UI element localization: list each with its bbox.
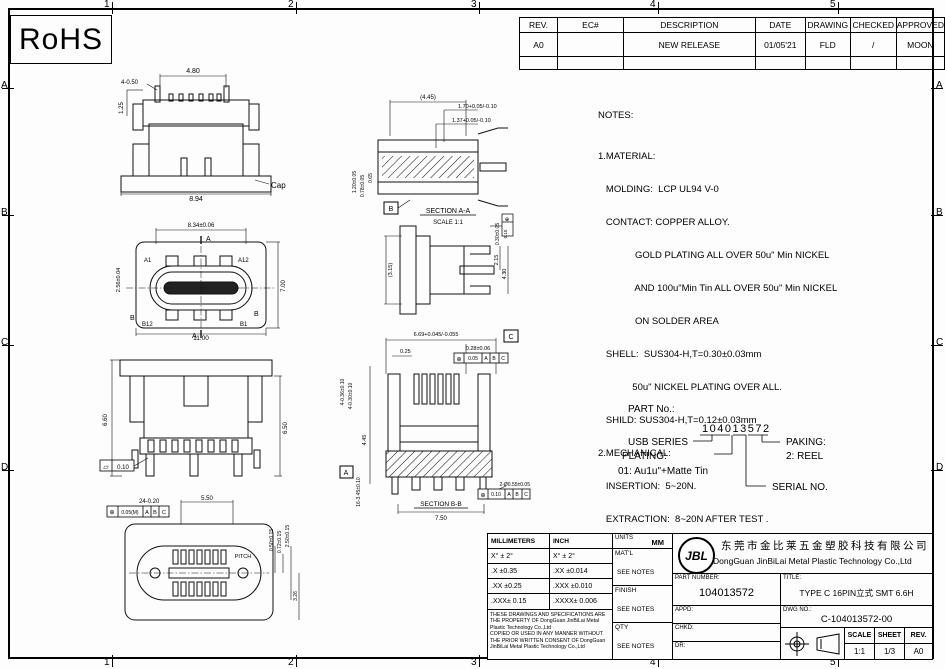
drawing-sheet: 1 2 3 4 5 1 2 3 4 5 A B C D A B C D RoHS…	[0, 0, 945, 669]
rear-dim-lines	[110, 360, 282, 476]
view-front: 4.80 4-0.50 1.25 8.94 Cap	[103, 60, 293, 202]
datum-label: C	[508, 334, 513, 341]
dim-label: 16-3.45±0.10	[356, 477, 362, 507]
bottom-geometry	[125, 524, 273, 620]
position-icon: ⊕	[505, 217, 510, 223]
rear-gdt-frame: ▱ 0.10	[100, 460, 134, 471]
revision-row-empty	[520, 57, 945, 70]
rev-header-cell: REV.	[904, 627, 933, 644]
border-col-label: 2	[288, 0, 294, 10]
dim-label: 4.30	[502, 269, 508, 280]
projection-symbol-cell	[780, 627, 845, 660]
dim-label: 1.70+0.05/-0.10	[458, 104, 497, 110]
dim-label: 4-0.30±0.10	[348, 382, 354, 409]
dim-label: 6.69+0.045/-0.055	[414, 332, 459, 338]
tolerance-cell: .XX ±0.014	[549, 563, 613, 579]
border-col-label: 4	[650, 0, 656, 10]
part-number-value: 104013572	[699, 587, 754, 599]
section-arrow-a: A	[206, 236, 211, 243]
dim-label: 0.28±0.06	[466, 346, 490, 352]
dim-label: 4.80	[186, 68, 200, 75]
section-arrow-b: B	[130, 315, 135, 322]
tolerance-cell: .XXXX± 0.006	[549, 593, 613, 610]
qty-value: SEE NOTES	[617, 643, 654, 650]
dim-label: 0.25	[400, 349, 411, 355]
front-geometry	[121, 86, 271, 192]
chkd-label: CHKD:	[675, 625, 694, 631]
logo-text: JBL	[685, 549, 708, 563]
units-value: MM	[652, 538, 665, 547]
note-line: ON SOLDER AREA	[598, 316, 933, 327]
pin-b12-label: B12	[142, 322, 153, 328]
approved-col-header: APPROVED	[896, 18, 944, 33]
drawing-col-header: DRAWING	[805, 18, 850, 33]
scale-label: SCALE	[848, 632, 872, 639]
border-col-label: 3	[471, 0, 477, 10]
note-line: AND 100u"Min Tin ALL OVER 50u" Min NICKE…	[598, 283, 933, 294]
dim-label: 4-0.50	[121, 80, 139, 86]
revision-table: REV. EC# DESCRIPTION DATE DRAWING CHECKE…	[519, 17, 945, 70]
view-bottom-pads: 24-0.20 ⊕ 0.05(M) A B C	[103, 494, 303, 634]
rev-value: A0	[914, 647, 924, 656]
company-cell: JBL 东莞市金比莱五金塑胶科技有限公司 DongGuan JinBiLai M…	[672, 533, 933, 574]
dim-label: 2.56±0.04	[116, 268, 122, 292]
pitch-label: PITCH	[235, 554, 252, 560]
border-row-label: D	[1, 462, 8, 473]
date-empty	[755, 57, 805, 70]
dim-label: 6.50	[283, 422, 289, 434]
section-arrow-b: B	[254, 311, 259, 318]
view-section-aa: (4.45) 1.70+0.05/-0.10 1.37+0.05/-0.10 1…	[348, 82, 513, 227]
dim-label: 0.50±0.15	[269, 529, 275, 551]
note-line: 50u" NICKEL PLATING OVER ALL.	[598, 382, 933, 393]
qty-cell: QTY SEE NOTES	[612, 622, 673, 660]
dim-label: 5.50	[201, 496, 213, 502]
dim-label: 2.50±0.15	[285, 525, 291, 547]
border-row-label: A	[936, 80, 943, 91]
pin-b1-label: B1	[240, 322, 248, 328]
dim-label: 2.15	[494, 255, 500, 266]
border-col-label: 1	[104, 0, 110, 10]
border-col-label: 2	[288, 657, 294, 668]
gdt-datum: C	[162, 510, 166, 516]
title-cell: TITLE: TYPE C 16PIN立式 SMT 6.6H	[780, 573, 933, 606]
tolerance-cell: .XX ±0.25	[487, 578, 550, 594]
description-empty	[623, 57, 755, 70]
material-cell: MAT'L SEE NOTES	[612, 548, 673, 586]
rear-geometry	[120, 360, 272, 476]
material-label: MAT'L	[615, 550, 633, 557]
revision-row: A0 NEW RELEASE 01/05'21 FLD / MOON	[520, 33, 945, 57]
scale-value-cell: 1:1	[844, 643, 875, 660]
border-tick	[296, 2, 297, 14]
legal-disclaimer: THESE DRAWINGS AND SPECIFICATIONS ARE TH…	[487, 609, 613, 660]
position-icon: ⊕	[109, 510, 114, 516]
gdt-datum: C	[524, 492, 528, 498]
description-value: NEW RELEASE	[623, 33, 755, 57]
dim-label: (3.15)	[388, 263, 394, 278]
finish-label: FINISH	[615, 587, 636, 594]
position-icon: ⊕	[456, 357, 461, 363]
view-rear: 6.60 6.50 ▱ 0.10	[96, 340, 296, 488]
dim-label: 7.00	[281, 280, 287, 292]
ec-empty	[557, 57, 623, 70]
part-no-number: 104013572	[702, 423, 771, 435]
rohs-label: RoHS	[19, 23, 103, 57]
bb-datum-c: C	[504, 330, 518, 342]
note-line: MOLDING: LCP UL94 V-0	[598, 184, 933, 195]
border-tick	[296, 655, 297, 667]
qty-label: QTY	[615, 624, 628, 631]
dim-label: 4-0.36±0.10	[340, 378, 346, 405]
dim-label: 7.50	[435, 516, 447, 522]
tolerance-mm-header: MILLIMETERS	[487, 533, 550, 549]
gdt-datum: A	[145, 510, 149, 516]
tolerance-cell: .X ±0.35	[487, 563, 550, 579]
view-side: (3.15) 0.30±0.05 ⊕ 0.15 2.15 4.30	[356, 212, 514, 330]
dim-label: 1.25	[119, 102, 125, 114]
bottom-gdt-frame: ⊕ 0.05(M) A B C	[107, 506, 169, 517]
dim-label: 0.65	[368, 173, 374, 183]
material-value: SEE NOTES	[617, 569, 654, 576]
section-arrow-a: A	[192, 333, 197, 340]
border-tick	[112, 655, 113, 667]
plating-value: 01: Au1u"+Matte Tin	[618, 466, 708, 477]
border-col-label: 3	[471, 657, 477, 668]
company-name-en: DongGuan JinBiLai Metal Plastic Technolo…	[713, 556, 912, 566]
tolerance-cell: .XXX± 0.15	[487, 593, 550, 610]
sheet-value: 1/3	[884, 647, 895, 656]
front-dim-lines	[121, 74, 271, 196]
checked-value: /	[850, 33, 896, 57]
notes-title: NOTES:	[598, 110, 933, 121]
dwg-no-cell: DWG NO.: C-104013572-00	[780, 605, 933, 628]
approved-value: MOON	[896, 33, 944, 57]
drawing-value: FLD	[805, 33, 850, 57]
units-label: UNITS	[615, 535, 633, 541]
tolerance-cell: .XXX ±0.010	[549, 578, 613, 594]
gdt-datum: B	[153, 510, 157, 516]
border-tick	[479, 2, 480, 14]
rev-empty	[520, 57, 558, 70]
dim-label: 1.20±0.05	[352, 171, 358, 193]
view-section-bb: 6.69+0.045/-0.055 C 0.25 0.28±0.06 ⊕ 0.0…	[336, 326, 532, 526]
rohs-stamp: RoHS	[10, 15, 112, 64]
note-line: GOLD PLATING ALL OVER 50u" Min NICKEL	[598, 250, 933, 261]
rev-value-cell: A0	[904, 643, 933, 660]
aa-geometry	[378, 128, 508, 206]
gdt-value: 0.10	[491, 492, 501, 498]
border-col-label: 5	[830, 0, 836, 10]
border-row-label: B	[1, 207, 8, 218]
dim-label: 0.78±0.05	[360, 175, 366, 197]
section-bb-title: SECTION B-B	[420, 501, 462, 508]
ec-col-header: EC#	[557, 18, 623, 33]
scale-value: 1:1	[854, 647, 865, 656]
date-col-header: DATE	[755, 18, 805, 33]
units-cell: UNITS MM	[612, 533, 673, 549]
bb-datum-a: A	[340, 466, 353, 478]
note-line: CONTACT: COPPER ALLOY.	[598, 217, 933, 228]
part-no-label: PART No.:	[628, 404, 675, 415]
border-row-label: C	[936, 337, 943, 348]
third-angle-projection-icon	[781, 628, 844, 659]
finish-cell: FINISH SEE NOTES	[612, 585, 673, 623]
dr-label: DR:	[675, 643, 685, 649]
dim-label: 4.45	[362, 435, 368, 446]
dim-label: 8.34±0.06	[188, 223, 215, 229]
bb-gdt-frame-2: ⊕ 0.10 A B C	[478, 489, 530, 499]
appd-label: APPD:	[675, 607, 693, 613]
date-value: 01/05'21	[755, 33, 805, 57]
paking-value: 2: REEL	[786, 451, 824, 462]
drawing-empty	[805, 57, 850, 70]
tolerance-inch-header: INCH	[549, 533, 613, 549]
border-tick	[658, 2, 659, 14]
rev-col-header: REV.	[520, 18, 558, 33]
gdt-value: 0.10	[117, 465, 129, 471]
company-logo: JBL	[678, 537, 715, 574]
bb-gdt-frame-1: ⊕ 0.05 A B C	[454, 353, 508, 363]
pin-a12-label: A12	[238, 258, 249, 264]
dim-label: (4.45)	[420, 95, 436, 101]
side-dim-lines	[384, 226, 508, 304]
sheet-header-cell: SHEET	[874, 627, 905, 644]
gdt-value: 0.05(M)	[121, 510, 139, 516]
drawing-title: TYPE C 16PIN立式 SMT 6.6H	[799, 587, 913, 599]
gdt-value: 0.15	[503, 229, 508, 238]
checked-col-header: CHECKED	[850, 18, 896, 33]
tolerance-cell: X° ± 2°	[487, 548, 550, 564]
border-tick	[112, 2, 113, 14]
dr-cell: DR:	[672, 641, 781, 660]
revision-header-row: REV. EC# DESCRIPTION DATE DRAWING CHECKE…	[520, 18, 945, 33]
tolerance-cell: X° ± 2°	[549, 548, 613, 564]
description-col-header: DESCRIPTION	[623, 18, 755, 33]
dim-label: 6.60	[103, 414, 109, 426]
border-col-label: 1	[104, 657, 110, 668]
part-no-leader-lines	[693, 435, 780, 486]
dim-label: 2-Ø0.55±0.05	[499, 482, 530, 488]
chkd-cell: CHKD:	[672, 623, 781, 642]
position-icon: ⊕	[480, 493, 485, 499]
ec-value	[557, 33, 623, 57]
dim-label: 0.30±0.05	[495, 223, 501, 245]
sheet-value-cell: 1/3	[874, 643, 905, 660]
serial-no-label: SERIAL NO.	[772, 482, 828, 493]
side-geometry	[400, 226, 494, 314]
border-row-label: A	[1, 80, 8, 91]
sheet-label: SHEET	[878, 632, 901, 639]
cap-label: Cap	[271, 181, 286, 190]
finish-value: SEE NOTES	[617, 606, 654, 613]
bb-geometry	[386, 374, 492, 494]
dim-label: 24-0.20	[139, 499, 160, 505]
approved-empty	[896, 57, 944, 70]
note-line: SHELL: SUS304-H,T=0.30±0.03mm	[598, 349, 933, 360]
rev-label: REV.	[911, 632, 927, 639]
dim-label: 1.37+0.05/-0.10	[452, 118, 491, 124]
dim-label: 0.72±0.15	[277, 531, 283, 553]
plating-label: PLATING:	[622, 451, 667, 462]
border-tick	[838, 2, 839, 14]
part-number-breakdown: PART No.: 104013572 USB SERIES PLATING: …	[590, 398, 940, 513]
scale-header-cell: SCALE	[844, 627, 875, 644]
company-name-cn: 东莞市金比莱五金塑胶科技有限公司	[721, 538, 929, 553]
note-line: 1.MATERIAL:	[598, 151, 933, 162]
gdt-datum: C	[501, 356, 505, 362]
datum-label: A	[344, 470, 349, 477]
border-row-label: C	[1, 337, 8, 348]
flatness-icon: ▱	[103, 464, 109, 471]
border-row-label: B	[936, 207, 943, 218]
side-gdt-frame: ⊕ 0.15	[502, 214, 513, 238]
gdt-value: 0.05	[468, 356, 478, 362]
paking-label: PAKING:	[786, 437, 826, 448]
dwg-no-value: C-104013572-00	[821, 614, 892, 625]
pin-a1-label: A1	[144, 258, 152, 264]
appd-cell: APPD:	[672, 605, 781, 624]
usb-series-label: USB SERIES	[628, 437, 688, 448]
dim-label: 3.26	[293, 591, 299, 601]
checked-empty	[850, 57, 896, 70]
note-line: EXTRACTION: 8~20N AFTER TEST .	[598, 514, 933, 525]
view-top-face: 8.34±0.06 2.56±0.04 7.00 11.00 A1 A12 B1…	[106, 200, 291, 340]
part-number-cell: PART NUMBER: 104013572	[672, 573, 781, 606]
border-tick	[479, 655, 480, 667]
rev-value: A0	[520, 33, 558, 57]
